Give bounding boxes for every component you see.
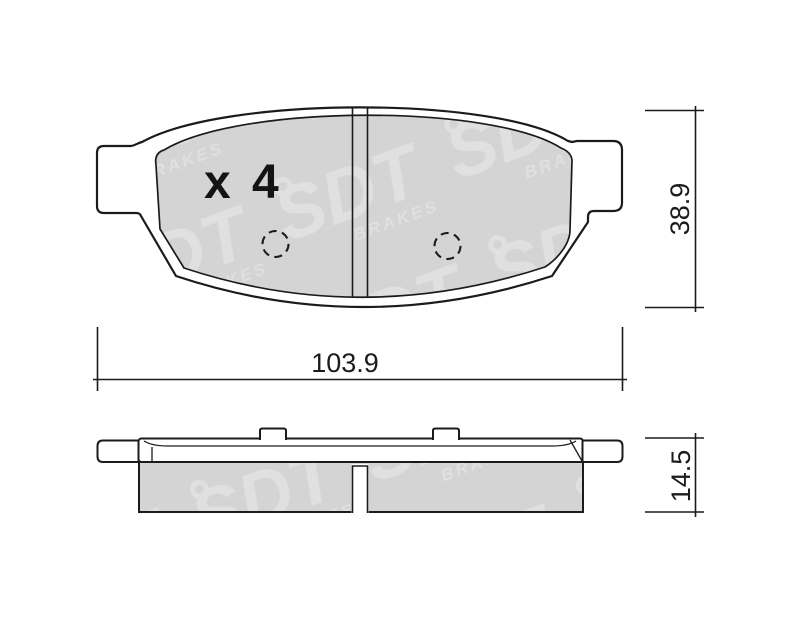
height-dimension: 38.9 <box>645 106 704 312</box>
profile-right-ear <box>583 441 623 463</box>
profile-backing-plate <box>139 439 584 463</box>
profile-left-ear <box>98 441 139 463</box>
drawing-canvas: SDT BRAKES x 4 <box>0 0 800 623</box>
profile-tab-left <box>260 429 286 441</box>
thickness-dimension: 14.5 <box>645 433 704 517</box>
height-dimension-value: 38.9 <box>665 183 695 236</box>
brake-pad-technical-drawing: SDT BRAKES x 4 <box>0 0 800 623</box>
profile-tab-right <box>433 429 459 441</box>
width-dimension-value: 103.9 <box>311 348 379 378</box>
profile-groove-cut <box>351 464 368 515</box>
quantity-label: x 4 <box>204 156 283 209</box>
profile-view <box>98 429 623 516</box>
thickness-dimension-value: 14.5 <box>666 450 696 503</box>
width-dimension: 103.9 <box>93 327 627 391</box>
plan-view: x 4 <box>97 107 622 307</box>
